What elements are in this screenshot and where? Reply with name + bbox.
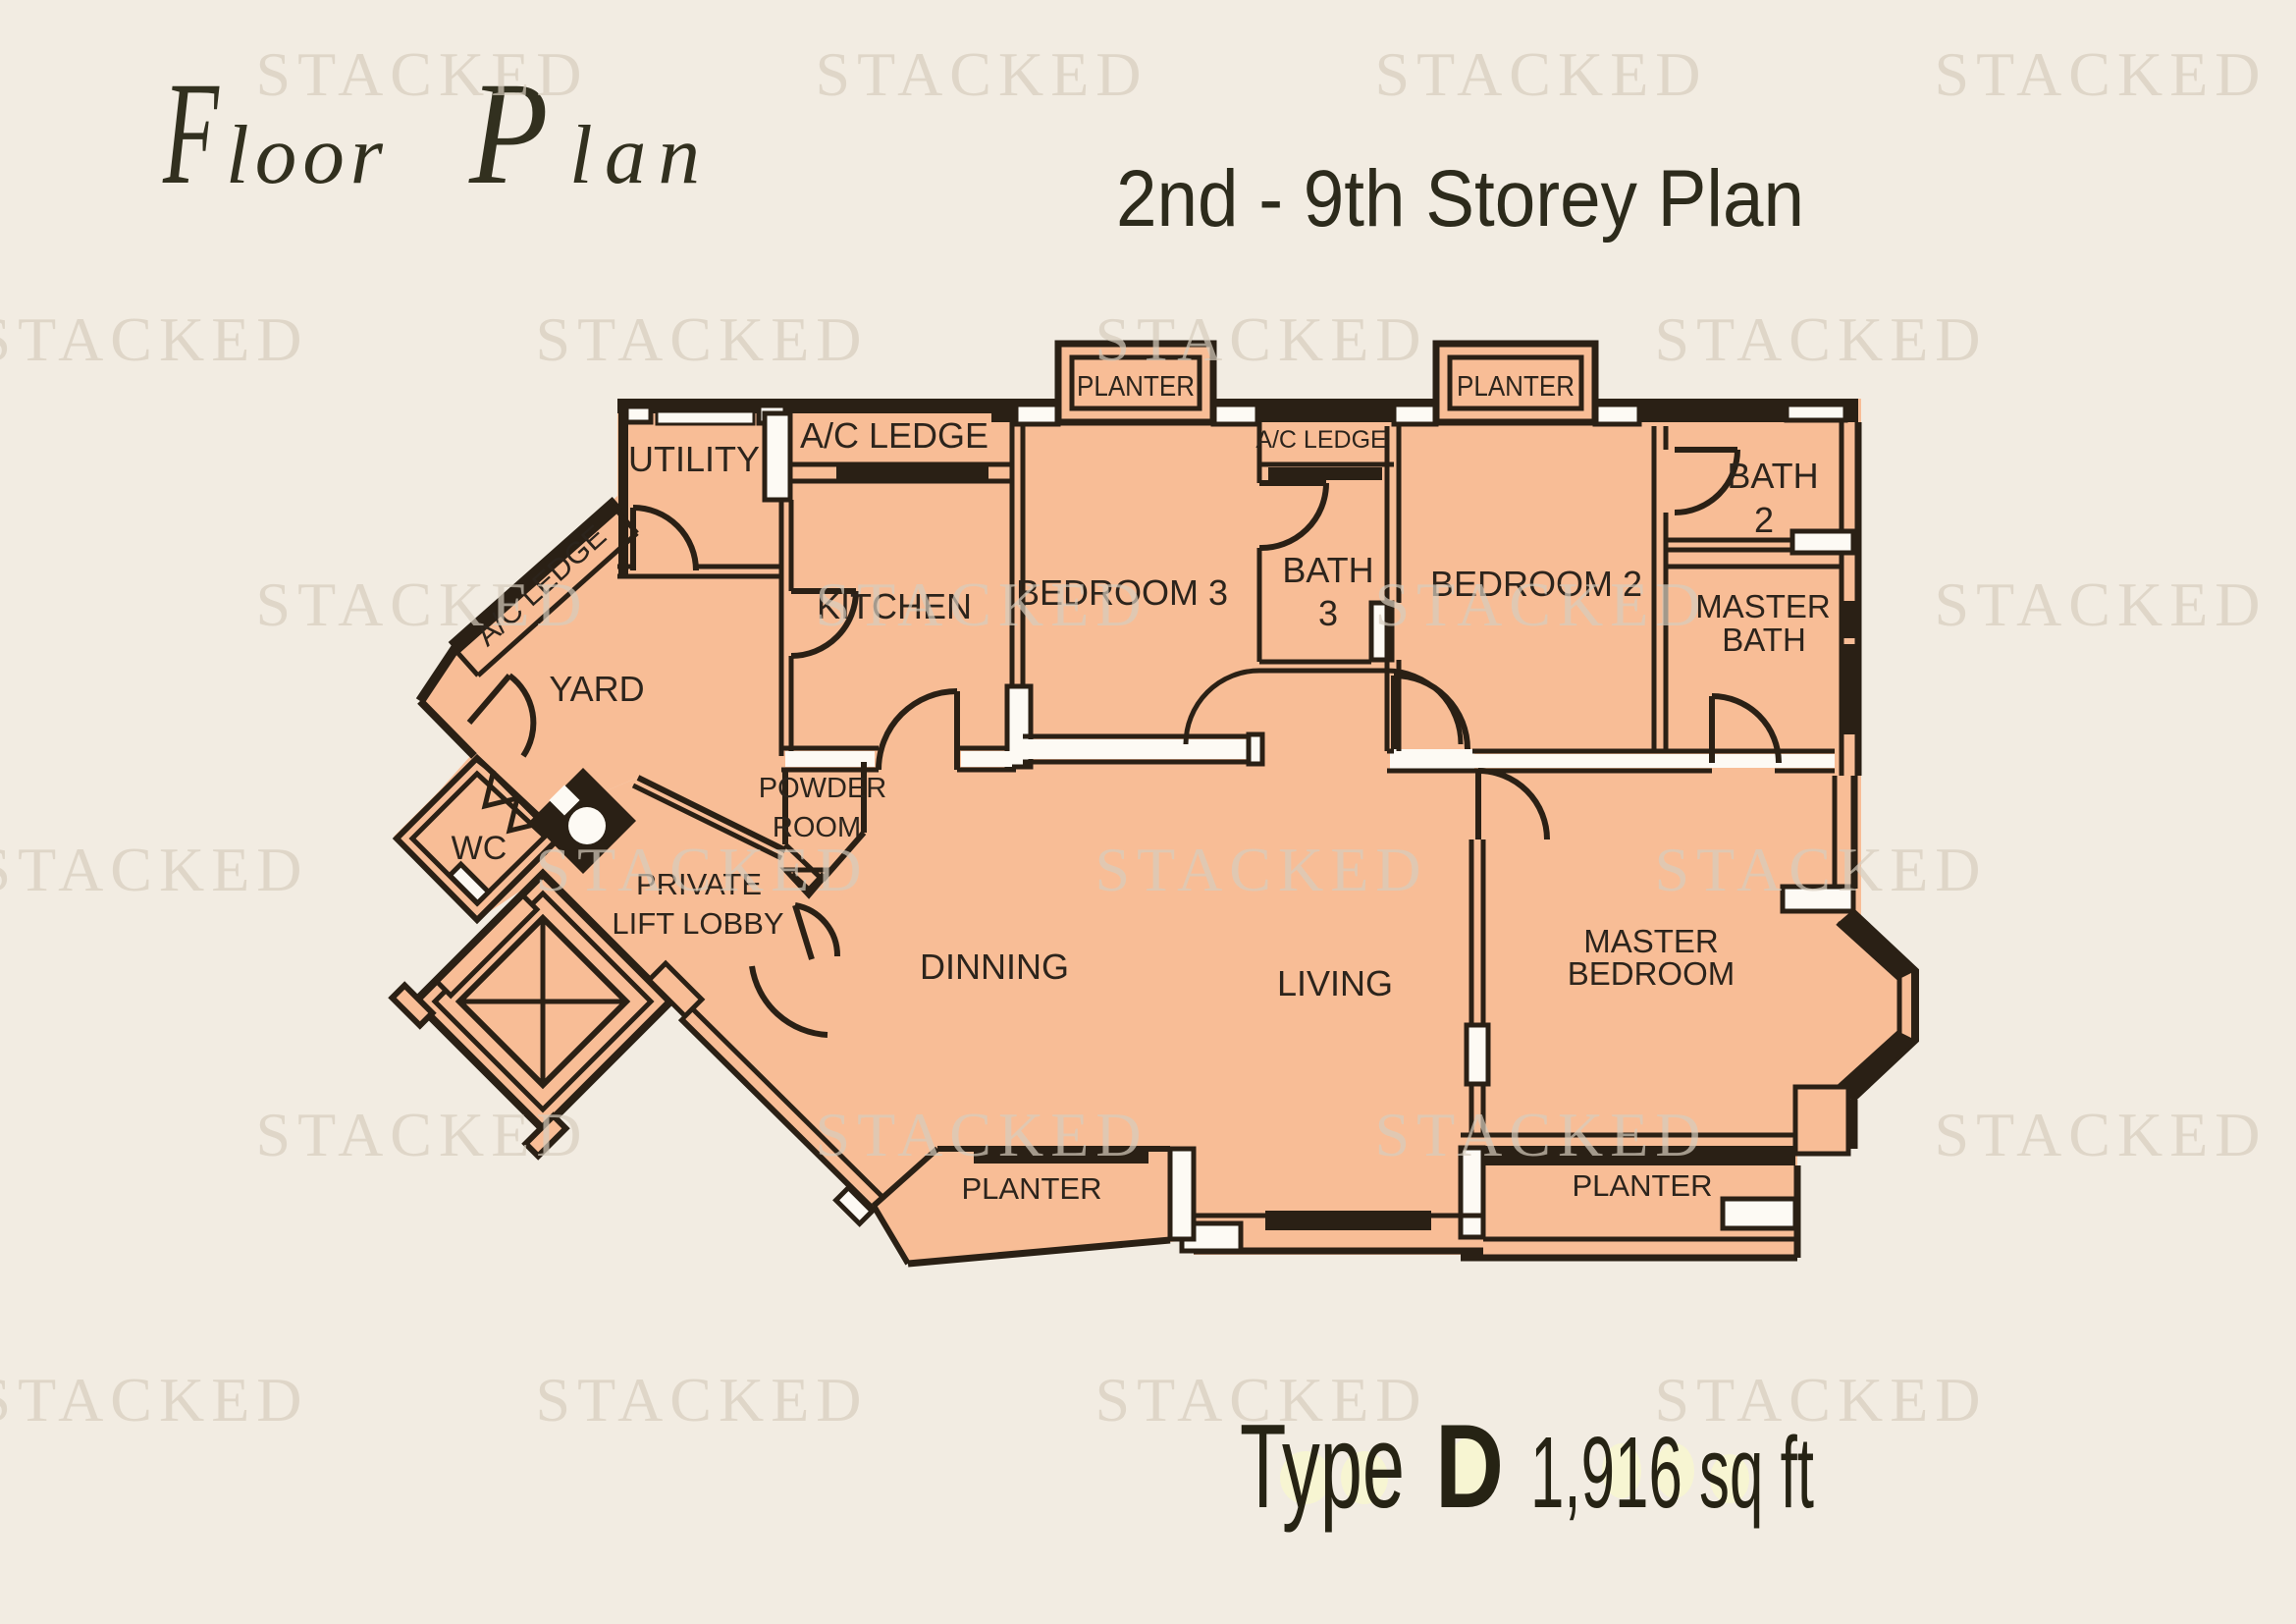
svg-text:DINNING: DINNING [920,947,1069,987]
svg-text:PLANTER: PLANTER [1457,371,1575,403]
svg-text:loor: loor [226,109,384,201]
svg-text:STACKED: STACKED [1375,1100,1708,1169]
svg-text:STACKED: STACKED [1935,39,2268,109]
svg-text:A/C LEDGE: A/C LEDGE [800,415,988,456]
svg-text:STACKED: STACKED [0,835,309,904]
svg-text:UTILITY: UTILITY [628,439,760,479]
svg-text:STACKED: STACKED [536,835,869,904]
svg-text:STACKED: STACKED [1935,1100,2268,1169]
svg-text:WC: WC [452,830,507,867]
svg-text:POWDER: POWDER [759,773,887,804]
svg-text:lan: lan [569,109,700,201]
svg-text:STACKED: STACKED [816,569,1148,639]
svg-text:MASTER: MASTER [1695,588,1831,624]
svg-text:STACKED: STACKED [1935,569,2268,639]
svg-text:LIFT LOBBY: LIFT LOBBY [612,906,783,941]
svg-text:MASTER: MASTER [1583,923,1719,959]
svg-text:STACKED: STACKED [256,1100,589,1169]
svg-text:STACKED: STACKED [536,1365,869,1435]
svg-text:BATH: BATH [1722,622,1806,658]
svg-text:STACKED: STACKED [1655,304,1988,374]
svg-text:STACKED: STACKED [536,304,869,374]
svg-text:STACKED: STACKED [1655,835,1988,904]
svg-text:2nd - 9th Storey Plan: 2nd - 9th Storey Plan [1116,154,1804,244]
svg-text:STACKED: STACKED [1655,1365,1988,1435]
svg-text:BEDROOM: BEDROOM [1568,955,1735,992]
svg-text:STACKED: STACKED [1375,569,1708,639]
svg-text:LIVING: LIVING [1277,963,1393,1003]
svg-text:STACKED: STACKED [256,569,589,639]
svg-text:PLANTER: PLANTER [1077,371,1195,403]
svg-text:3: 3 [1318,593,1338,633]
svg-text:STACKED: STACKED [0,304,309,374]
svg-text:A/C LEDGE: A/C LEDGE [1255,426,1386,454]
svg-text:YARD: YARD [549,669,644,709]
svg-text:STACKED: STACKED [816,39,1148,109]
svg-text:BATH: BATH [1727,456,1818,496]
svg-text:STACKED: STACKED [1375,39,1708,109]
svg-text:STACKED: STACKED [816,1100,1148,1169]
svg-text:PLANTER: PLANTER [962,1171,1102,1206]
svg-text:STACKED: STACKED [1095,1365,1428,1435]
svg-text:PLANTER: PLANTER [1573,1168,1713,1203]
svg-text:STACKED: STACKED [1095,835,1428,904]
svg-text:STACKED: STACKED [0,1365,309,1435]
svg-text:D: D [1435,1399,1504,1533]
svg-text:2: 2 [1754,500,1774,540]
svg-text:STACKED: STACKED [1095,304,1428,374]
svg-text:F: F [162,52,220,215]
svg-text:BATH: BATH [1282,550,1373,590]
svg-text:STACKED: STACKED [256,39,589,109]
